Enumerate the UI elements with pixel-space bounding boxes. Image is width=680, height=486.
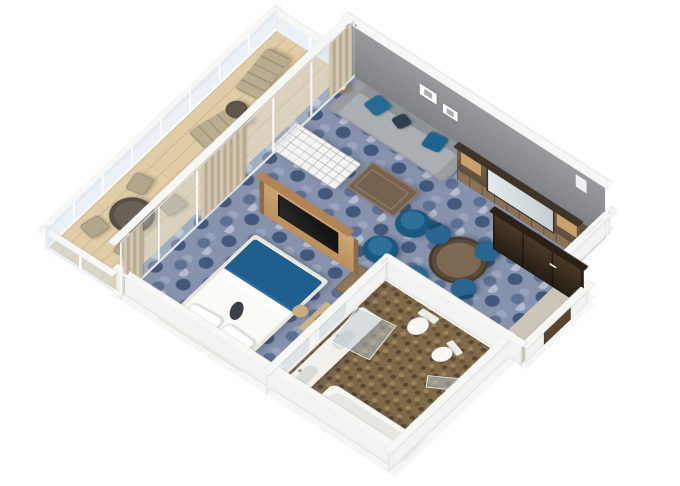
picture-frame (443, 103, 458, 122)
floorplan-render (0, 0, 680, 486)
faucet (297, 368, 303, 372)
suite-floorplan (38, 25, 605, 462)
wall-vent (576, 174, 587, 193)
picture-art (424, 89, 432, 100)
picture-art (447, 108, 454, 117)
picture-frame (420, 83, 437, 105)
